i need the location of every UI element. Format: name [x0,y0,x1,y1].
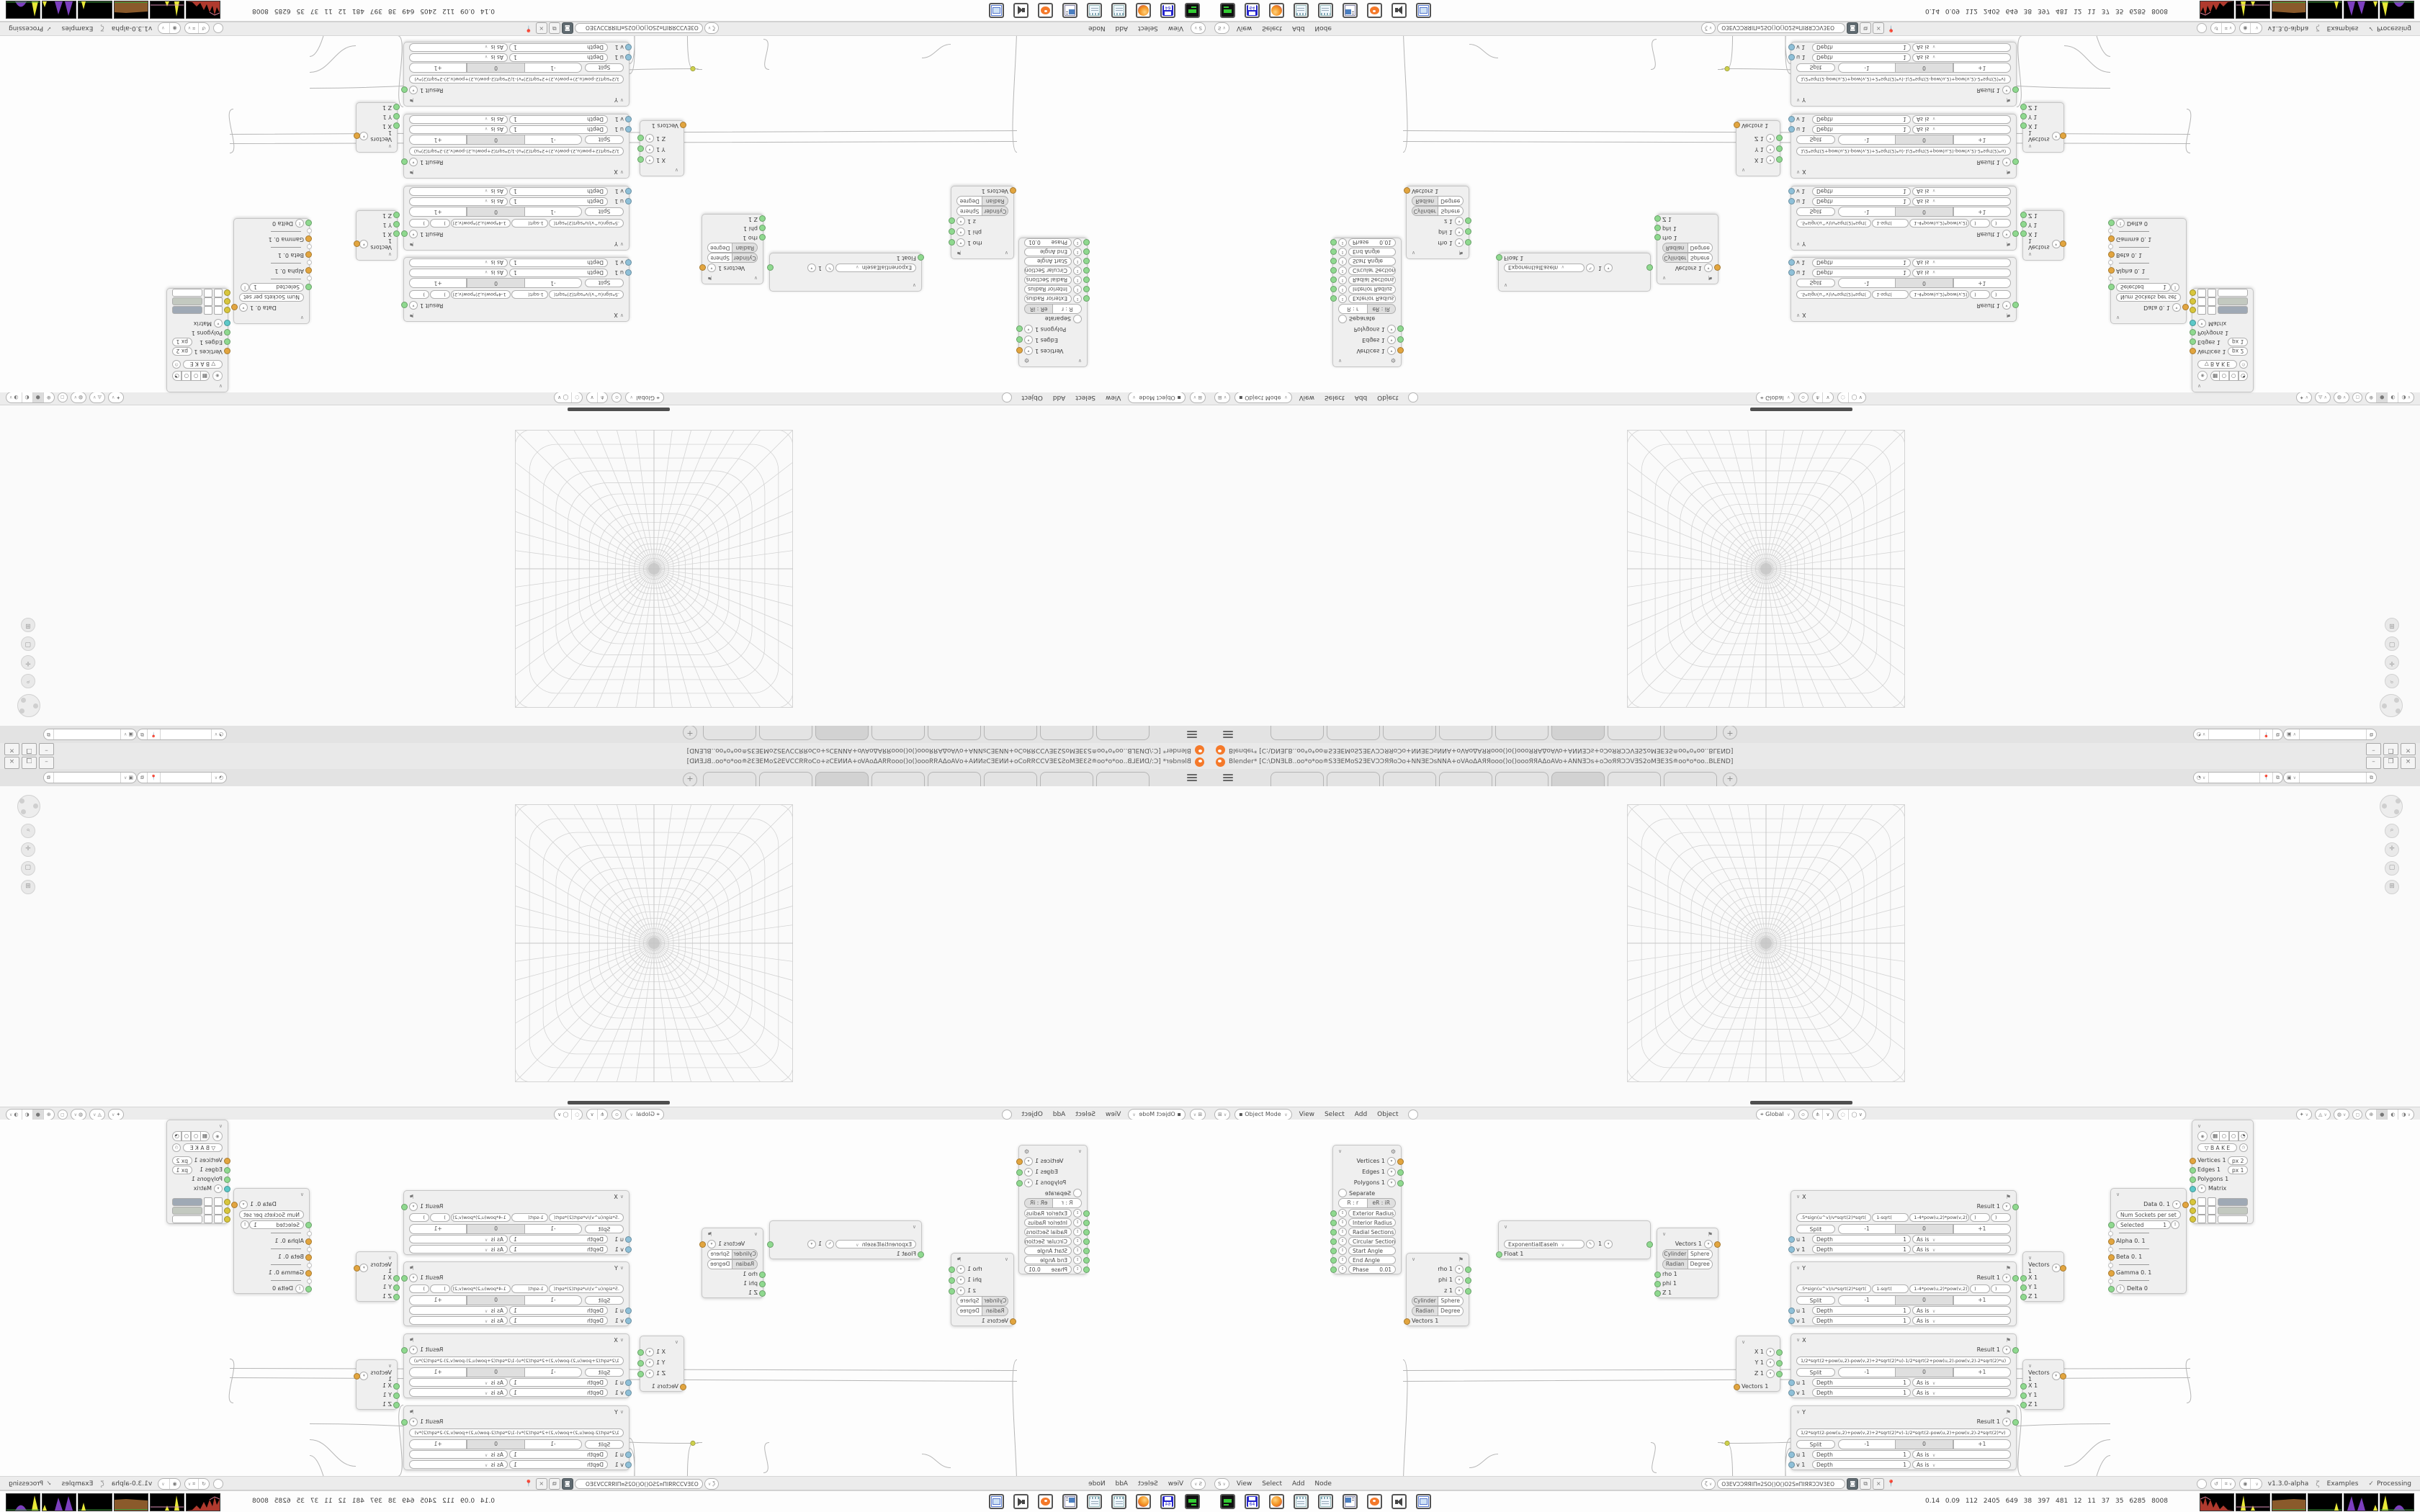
editor-type-button[interactable]: ⊞∨ [1214,392,1230,403]
workspace-tab-6[interactable] [1551,725,1605,740]
vector-in-a-node[interactable]: ∨Vectors 1▾X 1Y 1Z 1 [356,210,398,261]
collapse-arrow-icon[interactable]: ∨ [1662,275,1666,281]
dropdown-icon[interactable]: ▾ [645,156,654,165]
number-field[interactable]: Interior Radius0.00 [1024,1218,1072,1227]
move-icon[interactable]: ✛ [21,655,35,670]
dropdown-icon[interactable]: ▾ [409,1346,418,1354]
workspace-tab-4[interactable] [1439,725,1492,740]
color-option-icon[interactable] [214,1197,223,1206]
node-socket[interactable] [307,1247,312,1252]
as-is-dropdown[interactable]: As is ∨ [409,125,508,134]
examples-menu[interactable]: Examples [62,1480,94,1488]
node-socket[interactable] [354,241,360,248]
node-socket[interactable] [2020,104,2027,111]
node-editor-menu-add[interactable]: Add [1116,24,1128,32]
scene-name-field[interactable] [160,729,211,739]
vector-out-node[interactable]: ∨X 1▾Y 1▾Z 1▾Vectors 1 [640,1336,684,1392]
editor-type-button[interactable]: S∨ [1191,1478,1206,1490]
unlink-button[interactable]: × [1873,22,1884,34]
node-socket[interactable] [305,220,312,227]
activate-icon[interactable]: ◉ [212,1131,223,1141]
depth-field[interactable]: Depth1 [509,1235,608,1243]
node-socket[interactable] [305,1222,312,1228]
viewport-extra-button[interactable] [1002,1110,1012,1120]
node-socket[interactable] [224,348,230,355]
updown-icon[interactable]: ↕ [1073,239,1082,248]
workspace-tab-7[interactable] [1608,725,1661,740]
close-button[interactable]: × [2401,757,2416,769]
node-socket[interactable] [1734,1384,1740,1390]
formula-segment[interactable]: ) [1991,219,2011,228]
dropdown-icon[interactable]: ▾ [707,1240,716,1248]
node-socket[interactable] [1776,146,1783,153]
as-is-dropdown[interactable]: As is ∨ [409,1245,508,1254]
node-socket[interactable] [2182,305,2189,311]
dropdown-icon[interactable]: ▾ [2002,1418,2011,1426]
collapse-arrow-icon[interactable]: ∨ [675,167,678,173]
color-option-icon[interactable] [214,1215,223,1223]
node-socket[interactable] [2190,1207,2196,1214]
number-field[interactable]: Phase0.01 [1348,1265,1396,1274]
viewport-menu-add[interactable]: Add [1053,1111,1065,1118]
node-socket[interactable] [918,1251,924,1258]
stepper-group[interactable]: -10+1 [409,207,582,217]
depth-field[interactable]: Depth1 [509,1245,608,1254]
node-socket[interactable] [2190,1216,2196,1223]
orientation-dropdown[interactable]: ⌖ Global ∨ [625,392,664,403]
number-field[interactable]: Radial Sections64 [1024,276,1072,285]
bake-button[interactable]: ▽ B A K E [183,361,223,369]
node-editor-menu-node[interactable]: Node [1314,24,1332,32]
node-socket[interactable] [401,87,408,94]
dropdown-icon[interactable]: ▾ [1387,1168,1396,1176]
node-socket[interactable] [393,1284,400,1291]
color-option-icon[interactable] [204,289,212,297]
flag-icon[interactable]: ⚑ [409,241,414,248]
taskbar-app-blender[interactable] [1367,1494,1382,1509]
taskbar-app-window[interactable] [989,1494,1004,1509]
taskbar-app-console[interactable] [1185,1494,1200,1509]
value-field[interactable]: Num Sockets per set1 [2116,1210,2181,1219]
node-socket[interactable] [1788,1308,1795,1314]
vector-polar-in-node[interactable]: ∨⚑Vectors 1▾CylinderSphereRadianDegreerh… [702,1228,763,1298]
mode-dropdown[interactable]: ▪ Object Mode ∨ [1128,392,1185,403]
node-socket[interactable] [1330,1257,1337,1264]
stepper-group[interactable]: -10+1 [409,1367,582,1377]
node-socket[interactable] [625,1236,632,1243]
formula-segment[interactable]: 1-sqrt( [1872,290,1909,299]
node-socket[interactable] [2108,229,2113,234]
node-socket[interactable] [637,1371,644,1377]
activate-icon[interactable]: ◉ [2197,371,2208,381]
collapse-arrow-icon[interactable]: ∨ [1504,282,1507,288]
updown-icon[interactable]: ↕ [1338,1265,1347,1274]
drop-icon[interactable]: ▾ [214,320,223,328]
taskbar-app-firefox[interactable] [1269,3,1284,18]
color-option-icon[interactable] [2197,1215,2206,1223]
formula-fields[interactable]: .5*sign(u^v)/v*sqrt(2)*sqrt(1-sqrt(1-4*p… [1796,290,2011,299]
color-swatch[interactable] [172,307,202,315]
fake-user-button[interactable]: ◙ [1847,22,1858,34]
workspace-tab-5[interactable] [1495,772,1549,787]
node-socket[interactable] [1016,1180,1023,1187]
number-field[interactable]: Radial Sections64 [1348,276,1396,285]
number-field[interactable]: Circular Sections86 [1024,1237,1072,1246]
examples-menu[interactable]: Examples [62,24,94,32]
formula-x1-node[interactable]: ∨ X⚑Result 1▾.5*sign(u^v)/v*sqrt(2)*sqrt… [1791,1190,2017,1255]
node-socket[interactable] [1330,268,1337,274]
user-icon[interactable]: ↥ [2116,220,2125,228]
color-option-icon[interactable] [204,297,212,306]
node-socket[interactable] [1016,348,1023,354]
stepper-group[interactable]: -10+1 [1838,1295,2011,1305]
node-socket[interactable] [2108,245,2113,250]
easing-mode-dropdown[interactable]: ExponentialEaseIn ∨ [835,264,916,273]
formula-fields[interactable]: .5*sign(u^v)/v*sqrt(2)*sqrt(1-sqrt(1-4*p… [409,290,624,299]
node-socket[interactable] [2020,1284,2027,1291]
node-socket[interactable] [2020,222,2027,228]
formula-y1-node[interactable]: ∨ Y⚑Result 1▾.5*sign(u^v)/u*sqrt(2)*sqrt… [403,186,629,251]
node-editor-menu-node[interactable]: Node [1088,1480,1106,1488]
number-field[interactable]: Phase0.01 [1024,239,1072,248]
color-option-icon[interactable] [2197,289,2206,297]
dropdown-icon[interactable]: ▾ [409,1274,418,1282]
taskbar-app-floppy64[interactable]: 64 [1160,1494,1175,1509]
taskbar-app-notepad[interactable] [1294,3,1309,18]
node-socket[interactable] [949,218,955,225]
node-socket[interactable] [625,1452,632,1458]
node-socket[interactable] [1016,1158,1023,1165]
dropdown-icon[interactable]: ▾ [1455,217,1464,226]
collapse-arrow-icon[interactable]: ∨ [1796,312,1800,318]
color-option-icon[interactable] [2208,306,2216,315]
node-socket[interactable] [224,320,230,327]
updown-icon[interactable]: ↕ [1073,258,1082,266]
collapse-arrow-icon[interactable]: ∨ [1005,1256,1008,1262]
formula-segment[interactable]: .5*sign(u^v)/u*sqrt(2)*sqrt( [549,219,624,228]
overlay-node-dropdown[interactable]: ◉∨ [158,1478,181,1490]
pivot-dropdown[interactable]: ⊙ [611,1110,622,1120]
easing-node[interactable]: ∨ExponentialEaseIn ∨✎1▾Float 1 [1498,253,1651,292]
as-is-dropdown[interactable]: As is ∨ [1912,1235,2011,1243]
workspace-tab-8[interactable] [1664,725,1717,740]
workspace-tab-3[interactable] [1383,725,1436,740]
fake-user-button[interactable]: ◙ [562,1478,573,1490]
workspace-tab-8[interactable] [703,772,756,787]
workspace-tab-5[interactable] [871,725,925,740]
dropdown-icon[interactable]: ▾ [239,1200,248,1209]
dropdown-icon[interactable]: ▾ [645,1359,654,1367]
flag-icon[interactable]: ⚑ [409,1337,414,1344]
taskbar-app-notepad[interactable] [1111,1494,1126,1509]
depth-field[interactable]: Depth1 [1812,269,1911,277]
node-socket[interactable] [1496,255,1502,261]
toggle-button-pair[interactable]: CylinderSphere [956,206,1008,216]
as-is-dropdown[interactable]: As is ∨ [409,1450,508,1459]
formula-segment[interactable]: 1-4*pow(u,2)*pow(v,2) [1909,1284,1969,1293]
formula-segment[interactable]: 1/2*sqrt(2+pow(u,2)-pow(v,2)+2*sqrt(2)*u… [409,147,624,156]
overlay-node-dropdown[interactable]: ◉∨ [2239,1478,2262,1490]
node-socket[interactable] [1465,1288,1471,1295]
formula-segment[interactable]: 1-sqrt( [1872,1284,1909,1293]
pin-icon[interactable]: 📍 [525,1480,533,1488]
dropdown-icon[interactable]: ▾ [2052,132,2061,141]
editor-type-button[interactable]: ⊞∨ [1214,1109,1230,1120]
dropdown-icon[interactable]: ▾ [645,135,654,143]
header-circle-button[interactable] [2197,23,2207,33]
node-socket[interactable] [2020,1402,2027,1408]
zoom-icon[interactable]: ⌕ [21,674,35,688]
data-group-node[interactable]: ∨Data 0. 1▾Num Sockets per set1Selected1… [2110,1188,2187,1294]
node-socket[interactable] [625,44,632,50]
orientation-dropdown[interactable]: ⌖ Global ∨ [625,1109,664,1120]
menu-hamburger-icon[interactable] [1223,774,1233,781]
split-button[interactable]: Split [1796,1440,1835,1449]
node-socket[interactable] [1397,1158,1404,1165]
number-field[interactable]: Interior Radius0.00 [1348,1218,1396,1227]
formula-segment[interactable]: .5*sign(u^v)/u*sqrt(2)*sqrt( [1796,219,1871,228]
formula-segment[interactable]: ) [409,1284,429,1293]
color-option-icon[interactable] [2197,1197,2206,1206]
node-socket[interactable] [224,1207,230,1214]
node-socket[interactable] [1788,1462,1795,1468]
vector-polar-out-node[interactable]: ∨⚑rho 1▾phi 1▾z 1▾CylinderSphereRadianDe… [1406,1253,1469,1326]
node-socket[interactable] [393,222,400,228]
collapse-arrow-icon[interactable]: ∨ [1742,167,1745,173]
pin-icon[interactable]: 📍 [147,729,160,739]
workspace-tab-7[interactable] [1608,772,1661,787]
workspace-tab-5[interactable] [1495,725,1549,740]
node-socket[interactable] [1788,1236,1795,1243]
dropdown-icon[interactable]: ▾ [2002,302,2011,310]
formula-fields[interactable]: .5*sign(u^v)/u*sqrt(2)*sqrt(1-sqrt(1-4*p… [409,219,624,228]
updown-icon[interactable]: ↕ [1338,239,1347,248]
node-socket[interactable] [1083,240,1090,246]
node-socket[interactable] [307,1279,312,1284]
workspace-tab-6[interactable] [815,772,869,787]
torus-node[interactable]: ∨⚙Vertices 1▾Edges 1▾Polygons 1▾Separate… [1332,238,1402,367]
node-socket[interactable] [2012,1419,2019,1426]
copy-icon[interactable]: ⧉ [44,729,53,739]
node-socket[interactable] [625,54,632,60]
shading-mode-switch[interactable]: ⊕●◐◑∨ [2365,392,2414,403]
formula-segment[interactable]: ) [409,290,429,299]
color-option-icon[interactable] [204,1206,212,1215]
node-socket[interactable] [949,240,955,246]
overlays-toggle[interactable]: ◬∨ [89,392,105,403]
flag-icon[interactable]: ⚑ [409,169,414,176]
node-socket[interactable] [1654,216,1661,222]
as-is-dropdown[interactable]: As is ∨ [409,1388,508,1397]
color-option-icon[interactable] [2197,306,2206,315]
scene-selector[interactable]: ◔∨📍⧉ [137,772,227,783]
node-editor-menu-view[interactable]: View [1168,24,1183,32]
taskbar-app-image-viewer[interactable] [1343,1494,1358,1509]
flag-icon[interactable]: ⚑ [2006,312,2011,319]
show-gizmo-toggle[interactable]: ✦∨ [2296,392,2312,403]
dropdown-icon[interactable]: ▾ [807,1240,816,1248]
node-socket[interactable] [2012,1204,2019,1210]
node-socket[interactable] [2108,220,2115,227]
node-socket[interactable] [1330,1238,1337,1245]
node-socket[interactable] [2020,1294,2027,1300]
formula-segment[interactable]: .5*sign(u^v)/v*sqrt(2)*sqrt( [549,290,624,299]
dropdown-icon[interactable]: ▾ [1455,1287,1464,1295]
tree-browse-dropdown[interactable]: ζ∨ [1701,22,1716,34]
workspace-tab-5[interactable] [871,772,925,787]
user-icon[interactable]: ↥ [241,1220,249,1229]
split-button[interactable]: Split [585,279,624,288]
node-socket[interactable] [305,268,312,274]
collapse-arrow-icon[interactable]: ∨ [620,1265,624,1271]
node-editor-menu-add[interactable]: Add [1292,24,1304,32]
as-is-dropdown[interactable]: As is ∨ [1912,197,2011,206]
as-is-dropdown[interactable]: As is ∨ [1912,115,2011,124]
tree-name-field[interactable]: O3EVƆƆЯЯIΠ¤2SO()O()O2S¤ΠIЯЯƆƆV3EO [1717,23,1845,33]
easing-node[interactable]: ∨ExponentialEaseIn ∨✎1▾Float 1 [769,1220,922,1259]
node-socket[interactable] [1330,296,1337,302]
collapse-arrow-icon[interactable]: ∨ [913,282,916,288]
collapse-arrow-icon[interactable]: ∨ [620,97,624,103]
node-socket[interactable] [354,133,360,140]
pin-icon[interactable]: 📍 [1887,24,1895,32]
node-socket[interactable] [307,1263,312,1268]
stepper-group[interactable]: -10+1 [1838,135,2011,145]
user-icon[interactable]: ↥ [2171,1220,2179,1229]
as-is-dropdown[interactable]: As is ∨ [409,1460,508,1469]
node-socket[interactable] [2190,289,2196,296]
node-socket[interactable] [401,302,408,309]
node-socket[interactable] [2190,320,2196,327]
timer-icon[interactable]: ◷ [2239,1143,2248,1152]
overlays-toggle[interactable]: ◬∨ [89,1109,105,1120]
number-field[interactable]: Interior Radius0.00 [1024,286,1072,294]
formula-segment[interactable]: ) [1970,1213,1990,1222]
collapse-arrow-icon[interactable]: ∨ [2028,1363,2032,1369]
toggle-button-pair[interactable]: RadianDegree [707,1259,758,1269]
depth-field[interactable]: Depth1 [509,43,608,52]
workspace-tab-4[interactable] [1439,772,1492,787]
flag-icon[interactable]: ⚑ [707,275,712,282]
dropdown-icon[interactable]: ▾ [1024,336,1033,345]
node-socket[interactable] [1397,337,1404,343]
px-size-field[interactable]: px 2 [2228,1156,2248,1165]
flag-icon[interactable]: ⚑ [2006,1265,2011,1272]
unlink-button[interactable]: × [536,22,547,34]
collapse-arrow-icon[interactable]: ∨ [1078,1148,1082,1154]
value-field[interactable]: Selected1 [249,1220,304,1229]
number-field[interactable]: Exterior Radius1.00 [1024,295,1072,304]
node-socket[interactable] [307,261,312,266]
depth-field[interactable]: Depth1 [509,125,608,134]
color-swatch[interactable] [172,1215,202,1223]
dropdown-icon[interactable]: ▾ [645,145,654,154]
dropdown-icon[interactable]: ▾ [1024,347,1033,356]
node-socket[interactable] [1016,1169,1023,1176]
collapse-arrow-icon[interactable]: ∨ [1796,241,1800,247]
view-layer-selector[interactable]: ▣∨⧉ [2283,772,2377,783]
node-socket[interactable] [699,265,706,271]
node-socket[interactable] [1496,1251,1502,1258]
viewport-collapsed-shelf[interactable] [568,1101,670,1104]
vector-polar-out-node[interactable]: ∨⚑rho 1▾phi 1▾z 1▾CylinderSphereRadianDe… [1406,186,1469,259]
node-socket[interactable] [2190,1186,2196,1192]
dropdown-icon[interactable]: ▾ [1766,156,1775,165]
radio-icon[interactable] [1338,315,1347,323]
vector-polar-out-node[interactable]: ∨⚑rho 1▾phi 1▾z 1▾CylinderSphereRadianDe… [951,186,1014,259]
dropdown-icon[interactable]: ▾ [2002,158,2011,167]
stepper-group[interactable]: -10+1 [1838,1439,2011,1449]
node-socket[interactable] [1788,126,1795,132]
dropdown-icon[interactable]: ▾ [1704,264,1713,273]
split-button[interactable]: Split [1796,208,1835,217]
tree-browse-dropdown[interactable]: ζ∨ [1701,1478,1716,1490]
color-option-icon[interactable] [2208,1206,2216,1215]
dropdown-icon[interactable]: ▾ [409,230,418,239]
new-workspace-button[interactable]: + [1723,725,1737,739]
number-field[interactable]: Phase0.01 [1348,239,1396,248]
torus-node[interactable]: ∨⚙Vertices 1▾Edges 1▾Polygons 1▾Separate… [1018,1145,1088,1274]
vector-polar-in-node[interactable]: ∨⚑Vectors 1▾CylinderSphereRadianDegreerh… [1657,214,1718,284]
formula-fields[interactable]: 1/2*sqrt(2+pow(u,2)-pow(v,2)+2*sqrt(2)*u… [1796,1356,2011,1365]
number-field[interactable]: End Angle360.00 [1024,248,1072,257]
render-preview-button[interactable]: ▢ [58,1110,68,1120]
node-socket[interactable] [1646,265,1653,271]
dropdown-icon[interactable]: ▾ [1766,1359,1775,1367]
new-copy-button[interactable]: ⧉ [549,22,560,34]
px-size-field[interactable]: px 2 [172,348,192,356]
node-socket[interactable] [393,231,400,238]
collapse-arrow-icon[interactable]: ∨ [620,1409,624,1415]
as-is-dropdown[interactable]: As is ∨ [1912,1460,2011,1469]
split-button[interactable]: Split [585,1440,624,1449]
flag-icon[interactable]: ⚑ [409,97,414,104]
node-socket[interactable] [1397,326,1404,333]
flag-icon[interactable]: ⚑ [707,1231,712,1238]
node-socket[interactable] [2182,1202,2189,1208]
formula-segment[interactable]: 1/2*sqrt(2-pow(u,2)+pow(v,2)+2*sqrt(2)*v… [1796,75,2011,84]
tree-browse-dropdown[interactable]: ζ∨ [704,1478,719,1490]
taskbar-app-notepad[interactable] [1111,3,1126,18]
node-socket[interactable] [1654,225,1661,232]
render-preview-button[interactable]: ▢ [2352,392,2362,402]
node-socket[interactable] [625,198,632,204]
pin-icon[interactable]: 📍 [2260,773,2273,783]
formula-segment[interactable]: 1-4*pow(u,2)*pow(v,2) [1909,219,1969,228]
taskbar-app-notepad[interactable] [1087,3,1102,18]
taskbar-app-window[interactable] [1416,1494,1431,1509]
toggle-button-pair[interactable]: CylinderSphere [1662,253,1713,263]
collapse-arrow-icon[interactable]: ∨ [1005,250,1008,256]
node-socket[interactable] [231,305,238,311]
collapse-arrow-icon[interactable]: ∨ [2197,383,2201,389]
viewport-menu-view[interactable]: View [1299,394,1314,401]
formula-segment[interactable]: ) [1991,1213,2011,1222]
node-editor-menu-node[interactable]: Node [1088,24,1106,32]
formula-segment[interactable]: 1/2*sqrt(2-pow(u,2)+pow(v,2)+2*sqrt(2)*v… [1796,1428,2011,1437]
easing-node[interactable]: ∨ExponentialEaseIn ∨✎1▾Float 1 [1498,1220,1651,1259]
node-socket[interactable] [1330,287,1337,293]
updown-icon[interactable]: ↕ [1338,258,1347,266]
drop-icon[interactable]: ▾ [2197,320,2206,328]
workspace-tab-8[interactable] [703,725,756,740]
node-socket[interactable] [2108,1286,2115,1292]
collapse-arrow-icon[interactable]: ∨ [1796,97,1800,103]
node-socket[interactable] [625,116,632,122]
node-socket[interactable] [767,1241,774,1248]
node-socket[interactable] [1083,1248,1090,1254]
vector-in-b-node[interactable]: ∨Vectors 1▾X 1Y 1Z 1 [2022,102,2064,153]
